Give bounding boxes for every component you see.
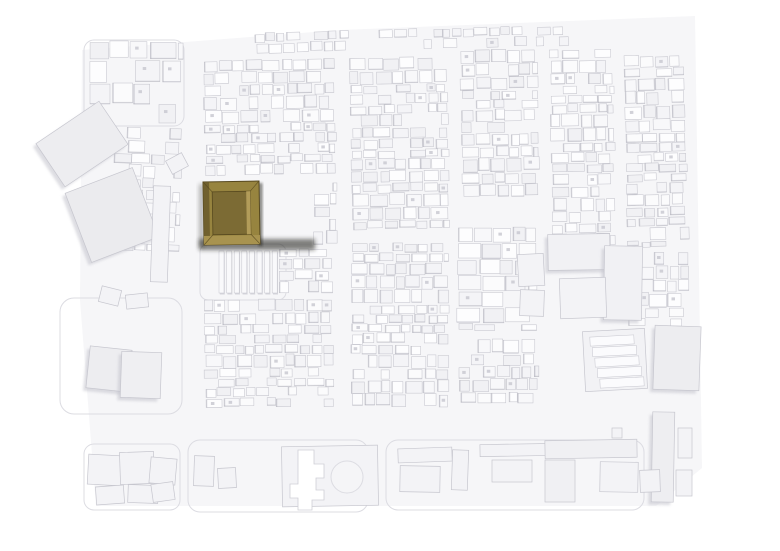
architectural-model-photo <box>0 0 780 551</box>
plaza-circle <box>331 461 363 493</box>
highlighted-building-west <box>203 181 260 245</box>
model-render <box>0 0 780 551</box>
stepped-building <box>582 328 647 391</box>
